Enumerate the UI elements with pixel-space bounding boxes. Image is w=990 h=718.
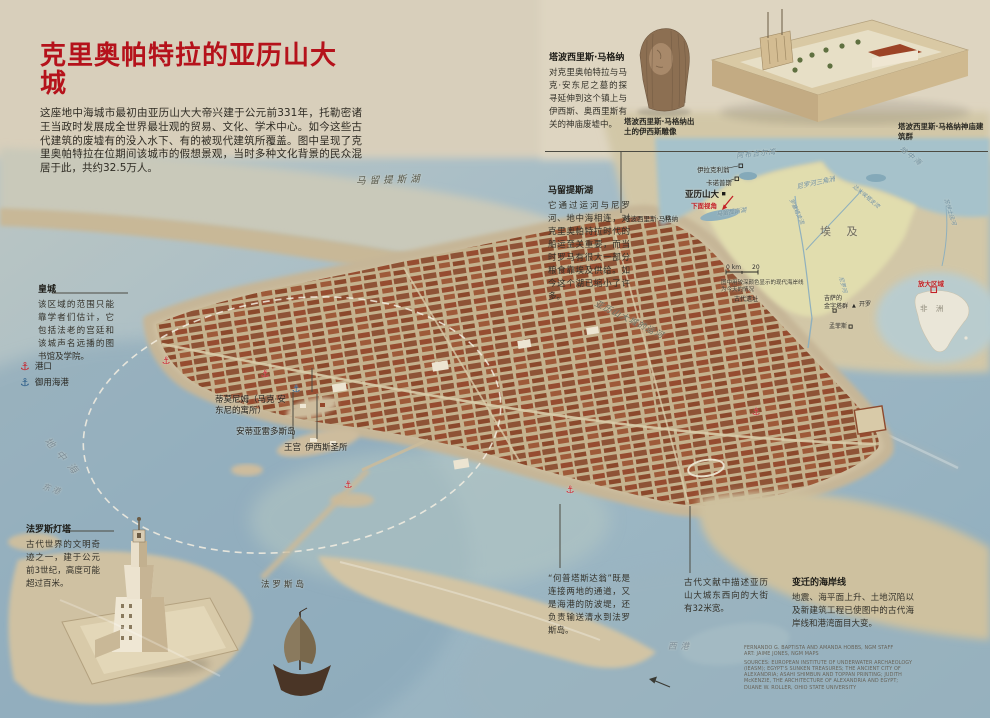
pharos-text-block: 法罗斯灯塔 古代世界的文明奇迹之一，建于公元前3世纪，高度可能超过百米。 [26,524,100,591]
inset-label-damietta: 达米埃塔支流 [851,184,881,210]
inset-label-heracleion: 伊拉克利翁 [697,166,730,174]
royal-city-body: 该区域的范围只能靠学者们估计，它包括法老的宫廷和该城声名远播的图书馆及学院。 [38,300,114,362]
inset-label-taposiris: 塔波西里斯·马格纳 [624,215,678,223]
harbor-legend: ⚓︎ 港口 ⚓︎ 御用海港 [20,360,69,392]
page-title: 克里奥帕特拉的亚历山大城 [40,42,362,98]
label-canal: 亚历山大城的运河 [592,299,665,342]
red-anchor-icon: ⚓︎ [344,481,353,491]
inset-label-view-below: 下面视角 [691,202,717,210]
label-east-harbor: 东港 [41,482,63,498]
inset-label-africa: 非 洲 [920,304,946,313]
inset-label-nile-delta: 尼罗河三角洲 [796,175,836,191]
harbor-anchor-icon: ⚓︎ [20,361,30,372]
credits-block: FERNANDO G. BAPTISTA AND AMANDA HOBBS, N… [744,645,916,691]
street-body: 古代文献中描述亚历山大城东西向的大街有32米宽。 [684,578,768,614]
inset-label-alexandria: 亚历山大 [685,190,719,201]
temple-caption: 塔波西里斯·马格纳神庙建筑群 [898,122,984,141]
inset-label-memphis: 孟菲斯 [829,323,847,331]
statue-caption: 塔波西里斯·马格纳出土的伊西斯雕像 [624,117,698,136]
inset-label-egypt: 埃 及 [820,225,864,239]
inset-label-mediterranean: 地中海 [898,145,925,169]
taposiris-body: 对克里奥帕特拉与马克·安东尼之墓的探寻延伸到这个镇上与伊西斯、奥西里斯有关的神庙… [549,68,627,130]
inset-label-suez: 苏伊士运河 [941,198,956,226]
label-pharos-island: 法罗斯岛 [261,580,307,591]
credits-sources: SOURCES: EUROPEAN INSTITUTE OF UNDERWATE… [744,660,916,690]
label-west-harbor: 西港 [668,642,693,653]
inset-marker-cairo-triangle: ▲ [852,303,856,309]
legend-royal-harbor-label: 御用海港 [35,376,69,388]
royal-city-heading: 皇城 [38,284,114,297]
inset-label-canopus: 卡诺普斯 [706,179,732,187]
pharos-body: 古代世界的文明奇迹之一，建于公元前3世纪，高度可能超过百米。 [26,540,100,589]
mareotis-text-block: 马留提斯湖 它通过运河与尼罗河、地中海相连，对克里奥帕特拉时代的船运至关重要，而… [548,185,630,304]
pharos-heading: 法罗斯灯塔 [26,524,100,537]
title-block: 克里奥帕特拉的亚历山大城 这座地中海城市最初由亚历山大大帝兴建于公元前331年，… [40,42,362,176]
inset-label-abukir-bay: 阿布吉尔湾 [736,148,777,161]
heptastadion-text-block: “何普塔斯达翁”既是连接两地的通道，又是海港的防波堤，还负责输送清水到法罗斯岛。 [548,573,630,638]
inset-label-zoom-area: 放大区域 [918,280,944,288]
inset-label-cairo: 开罗 [859,301,871,309]
inset-label-lake-mareotis: 马留提斯湖 [716,207,747,219]
infographic-poster: 马留提斯湖亚历山大城的运河地中海东港蒂莫尼姆（马克·安 东尼的寓所）安蒂亚雷多斯… [0,0,990,718]
red-anchor-icon: ⚓︎ [162,357,171,367]
intro-text: 这座地中海城市最初由亚历山大大帝兴建于公元前331年，托勒密诸王当政时发展成全世… [40,107,362,176]
legend-item-harbor: ⚓︎ 港口 [20,360,69,372]
inset-label-nile: 尼罗河 [836,276,847,294]
legend-item-royal-harbor: ⚓︎ 御用海港 [20,376,69,388]
taposiris-heading: 塔波西里斯·马格纳 [549,52,627,65]
mareotis-heading: 马留提斯湖 [548,185,630,198]
royal-harbor-anchor-icon: ⚓︎ [20,377,30,388]
label-isis-sanctuary: 伊西斯圣所 [305,443,348,454]
coastline-body: 地震、海平面上升、土地沉陷以及新建筑工程已使图中的古代海岸线和港湾面目大变。 [792,593,914,629]
label-lake-mareotis: 马留提斯湖 [356,174,424,188]
label-timonium: 蒂莫尼姆（马克·安 东尼的寓所） [215,395,286,416]
inset-label-giza: 吉萨的 金字塔群 [824,295,848,310]
coastline-text-block: 变迁的海岸线 地震、海平面上升、土地沉陷以及新建筑工程已使图中的古代海岸线和港湾… [792,577,914,631]
legend-harbor-label: 港口 [35,360,52,372]
label-mediterranean: 地中海 [41,436,84,482]
inset-scale-zero: 0 km [726,264,741,272]
mareotis-body: 它通过运河与尼罗河、地中海相连，对克里奥帕特拉时代的船运至关重要，而当时罗马有很… [548,201,630,302]
inset-label-rosetta: 罗塞塔支流 [787,198,805,226]
blue-anchor-icon: ⚓︎ [292,385,301,395]
inset-note: 图中用较深颜色显示的现代海岸线 为今天的情况 [721,280,804,294]
label-antirhodos: 安蒂亚雷多斯岛 [236,427,296,438]
label-palace: 王宫 [284,443,301,454]
inset-scale-twenty: 20 [752,264,760,272]
credits-staff: FERNANDO G. BAPTISTA AND AMANDA HOBBS, N… [744,645,916,657]
red-anchor-icon: ⚓︎ [261,370,270,380]
taposiris-text-block: 塔波西里斯·马格纳 对克里奥帕特拉与马克·安东尼之墓的探寻延伸到这个镇上与伊西斯… [549,52,627,132]
street-text-block: 古代文献中描述亚历山大城东西向的大街有32米宽。 [684,577,768,616]
red-anchor-icon: ⚓︎ [566,486,575,496]
royal-city-text-block: 皇城 该区域的范围只能靠学者们估计，它包括法老的宫廷和该城声名远播的图书馆及学院… [38,284,114,364]
heptastadion-body: “何普塔斯达翁”既是连接两地的通道，又是海港的防波堤，还负责输送清水到法罗斯岛。 [548,574,630,636]
coastline-heading: 变迁的海岸线 [792,577,914,590]
inset-legend-ancient-site: 古代遗址 [734,296,758,304]
red-anchor-icon: ⚓︎ [752,408,761,418]
